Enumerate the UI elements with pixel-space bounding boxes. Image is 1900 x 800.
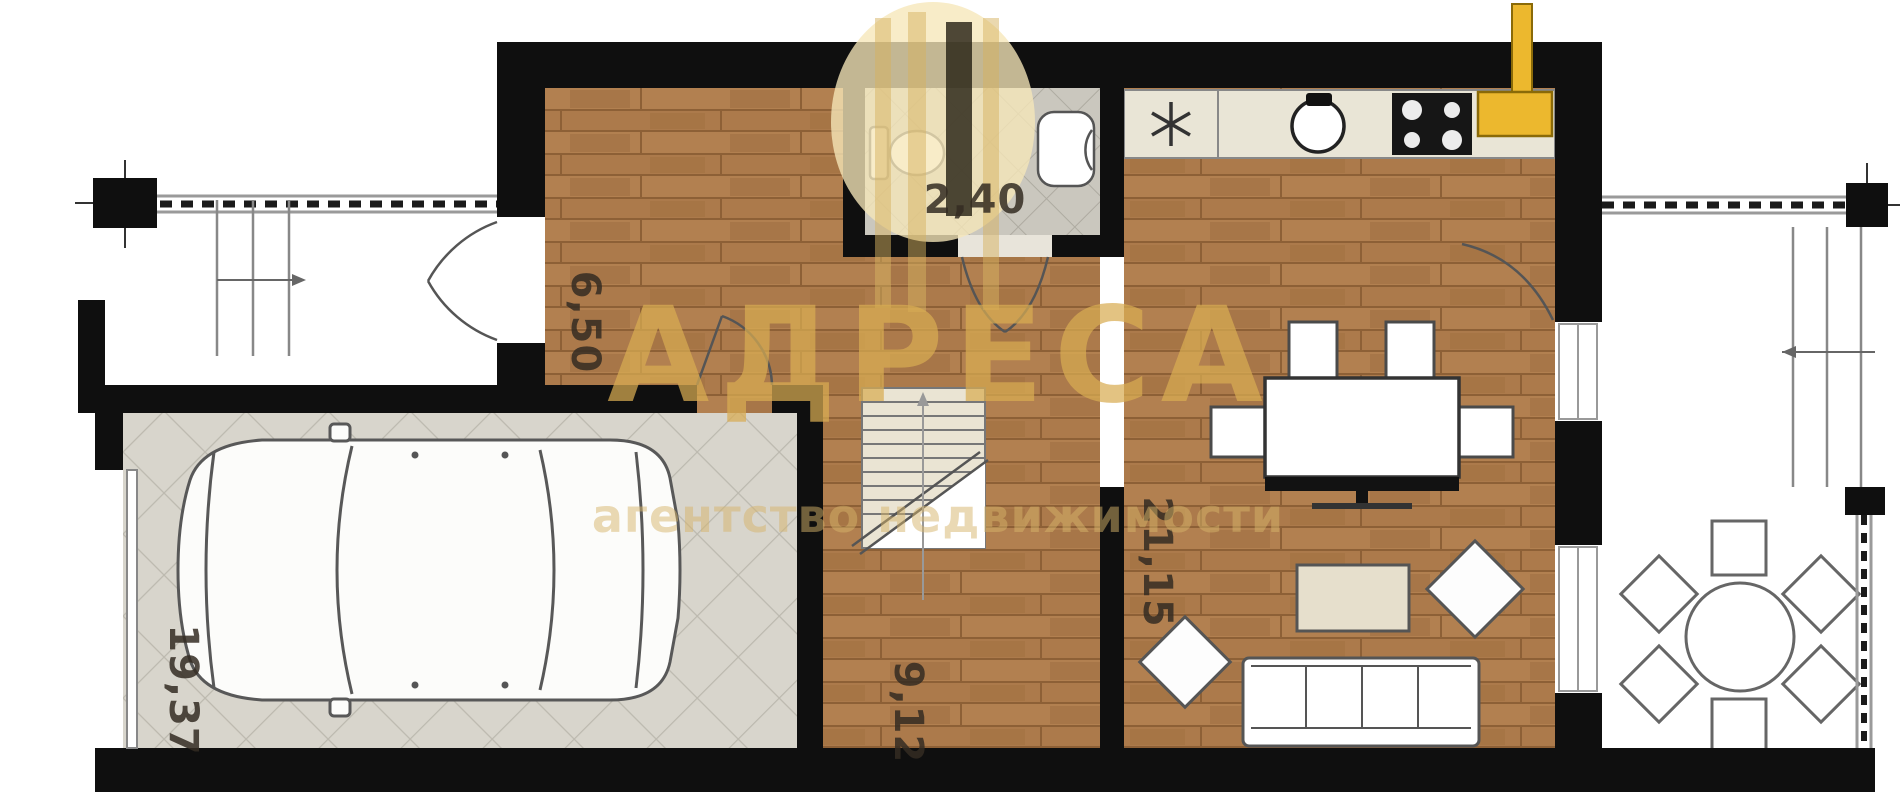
terrace-chair	[1712, 521, 1766, 575]
wall-right-mid	[1555, 421, 1602, 545]
dining-chair	[1386, 322, 1434, 378]
area-label-stair-hall: 9,12	[885, 661, 931, 764]
railing-post	[1846, 183, 1888, 227]
dining-chair	[1459, 407, 1513, 457]
area-label-garage: 19,37	[160, 624, 206, 756]
terrace-steps	[1793, 227, 1861, 487]
watermark-brand-text: АДРЕСА	[607, 279, 1273, 433]
front-door-swing	[428, 222, 497, 340]
wall-right-lower	[1555, 693, 1602, 748]
porch-steps	[217, 200, 289, 356]
terrace-set	[1621, 521, 1859, 753]
car	[178, 424, 680, 716]
wall-bathroom-bottom-right	[1052, 235, 1100, 257]
railing-post	[1845, 487, 1885, 515]
terrace-round-table	[1686, 583, 1794, 691]
wall-top	[497, 42, 1602, 88]
faucet-icon	[1306, 93, 1332, 106]
terrace-chair	[1621, 646, 1697, 722]
car-mirror-bottom	[330, 699, 350, 716]
wall-garage-left	[95, 413, 123, 470]
terrace-chair	[1783, 556, 1859, 632]
car-mirror-top	[330, 424, 350, 441]
garage-door	[127, 470, 137, 748]
bathroom-threshold	[958, 235, 1052, 257]
terrace-chair	[1783, 646, 1859, 722]
terrace-chair	[1621, 556, 1697, 632]
kitchen-sink-icon	[1292, 100, 1344, 152]
terrace-chair	[1712, 699, 1766, 753]
railing-post	[93, 178, 157, 228]
area-label-bathroom: 2,40	[924, 177, 1027, 223]
floor-plan: 6,50 2,40 21,15 9,12 19,37 АДРЕСА агентс…	[0, 0, 1900, 800]
dining-chair	[1289, 322, 1337, 378]
watermark-tagline-text: агентство недвижимости	[592, 489, 1284, 543]
wall-bottom	[95, 748, 1875, 792]
wall-garage-stair-divider	[797, 413, 823, 748]
wall-entry-left-upper	[497, 88, 545, 217]
dining-table	[1265, 378, 1459, 477]
coffee-table	[1297, 565, 1409, 631]
wall-bath-kitchen-divider	[1100, 88, 1124, 257]
porch-railing	[75, 160, 497, 356]
wall-right-upper	[1555, 88, 1602, 322]
sofa	[1243, 658, 1479, 746]
wall-garage-top-left	[78, 385, 697, 413]
area-label-entry-hall: 6,50	[562, 271, 608, 374]
wall-pillar	[78, 300, 105, 390]
stove-icon	[1392, 93, 1472, 155]
